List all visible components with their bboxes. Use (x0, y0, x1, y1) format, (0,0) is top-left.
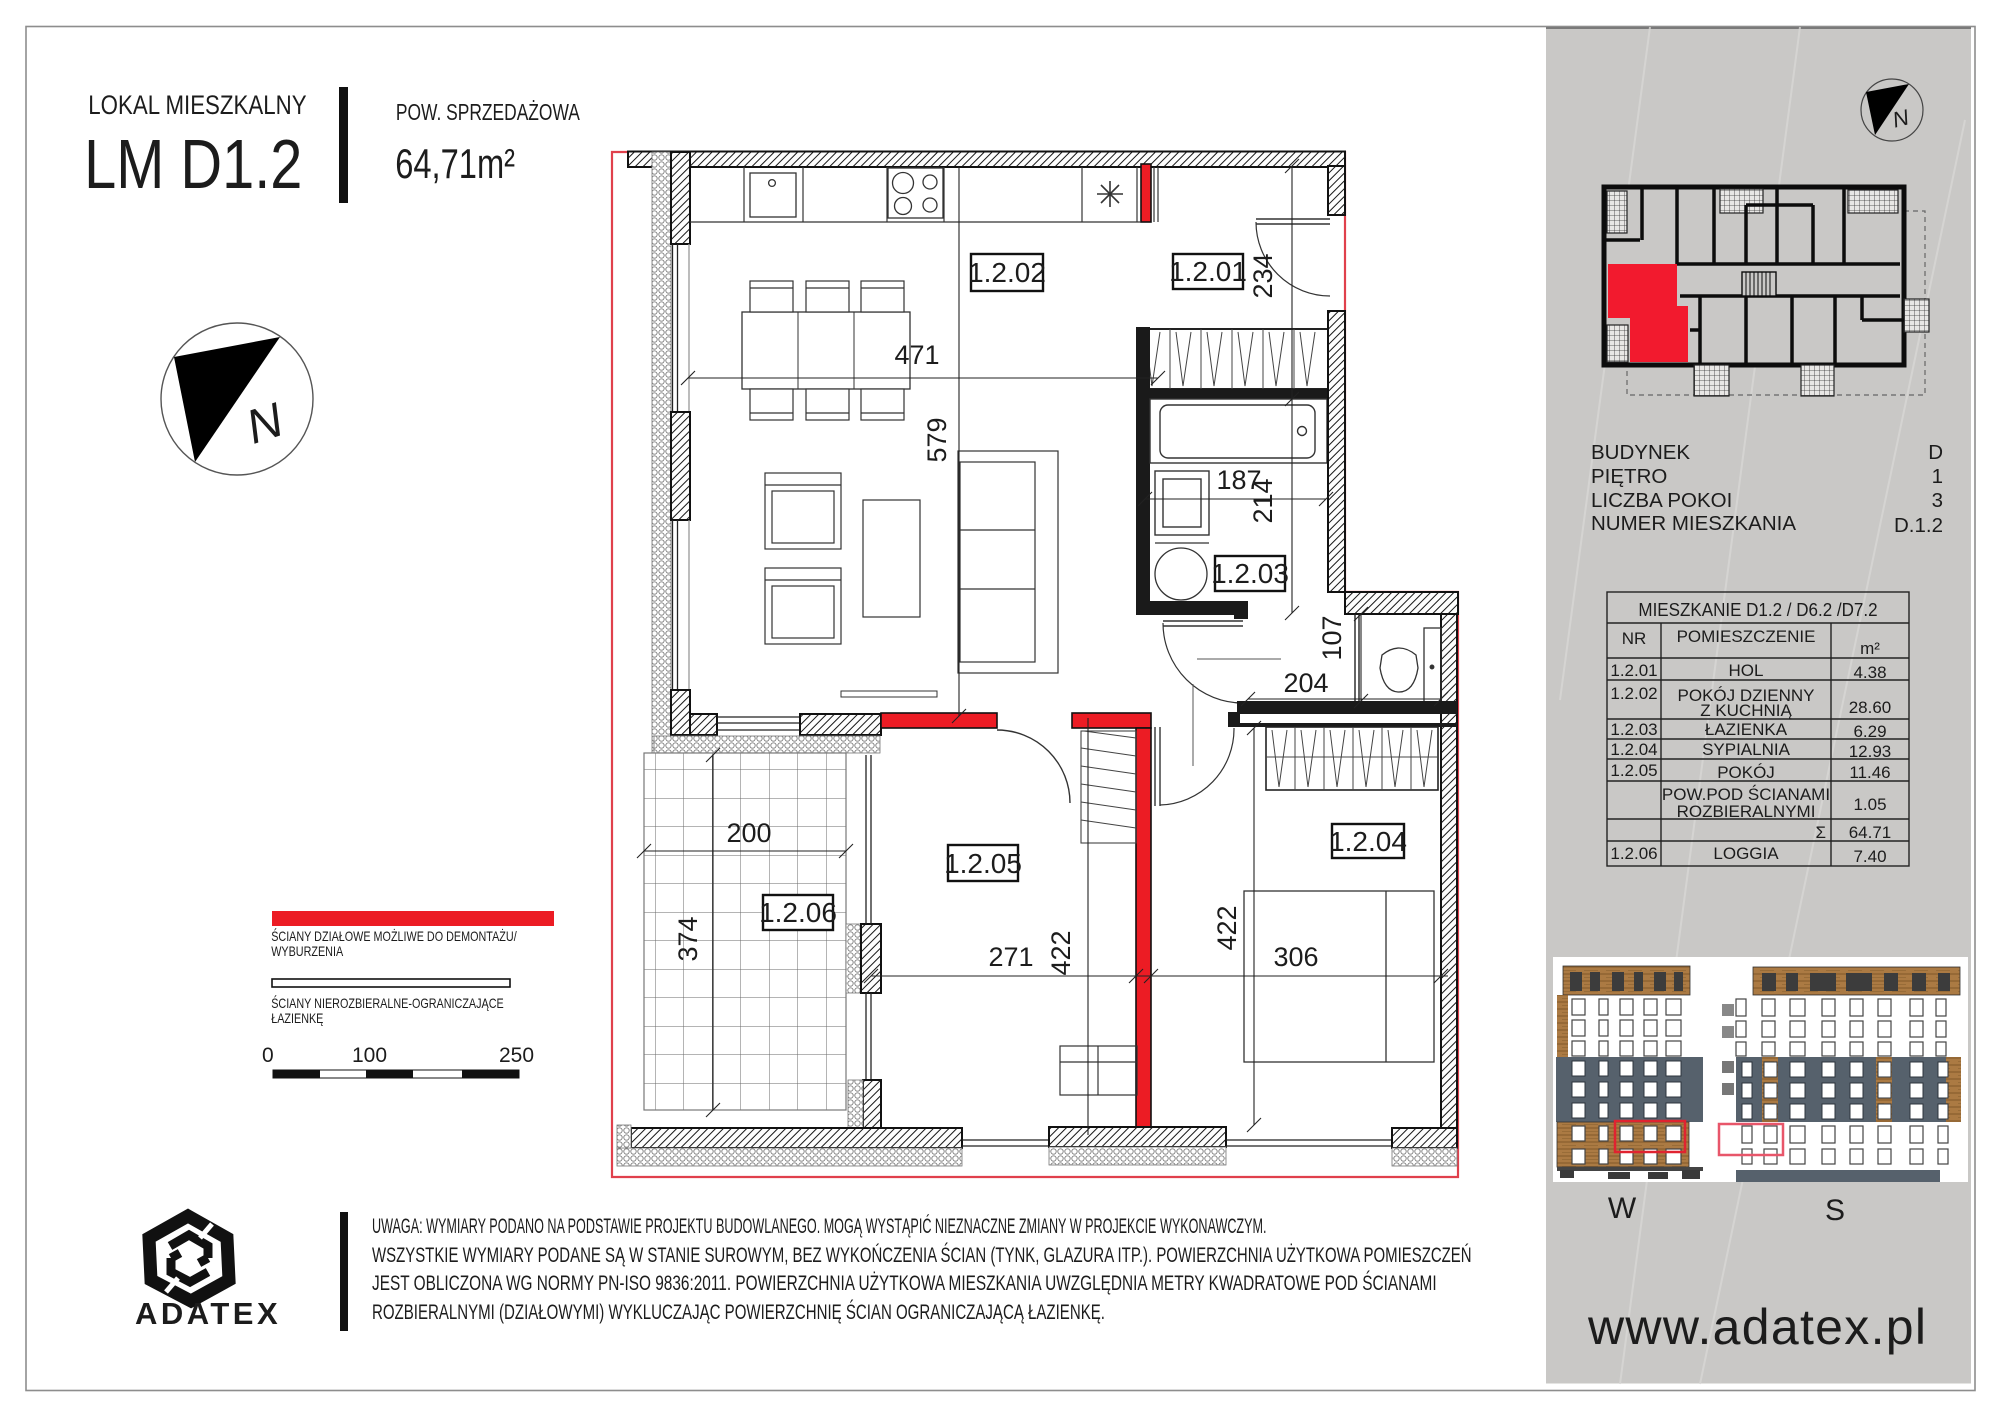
svg-text:W: W (1608, 1192, 1637, 1225)
svg-text:BUDYNEK: BUDYNEK (1591, 441, 1690, 464)
svg-text:MIESZKANIE D1.2 / D6.2 /D7.2: MIESZKANIE D1.2 / D6.2 /D7.2 (1638, 599, 1877, 620)
svg-text:374: 374 (673, 916, 703, 961)
svg-text:1.2.06: 1.2.06 (759, 897, 837, 928)
svg-text:WYBURZENIA: WYBURZENIA (271, 944, 344, 959)
svg-text:422: 422 (1046, 930, 1076, 975)
svg-text:LOGGIA: LOGGIA (1713, 844, 1779, 863)
svg-text:1.2.04: 1.2.04 (1329, 826, 1407, 857)
svg-text:D: D (1928, 441, 1943, 464)
svg-text:ROZBIERALNYMI (DZIAŁOWYMI) WYK: ROZBIERALNYMI (DZIAŁOWYMI) WYKLUCZAJĄC P… (372, 1299, 1105, 1323)
svg-text:D.1.2: D.1.2 (1894, 514, 1943, 537)
svg-text:1.05: 1.05 (1853, 795, 1886, 814)
svg-text:7.40: 7.40 (1853, 847, 1886, 866)
svg-text:ŚCIANY DZIAŁOWE MOŻLIWE DO DEM: ŚCIANY DZIAŁOWE MOŻLIWE DO DEMONTAŻU/ (271, 928, 517, 945)
svg-text:LM D1.2: LM D1.2 (84, 125, 302, 204)
svg-text:200: 200 (726, 818, 771, 848)
svg-text:64.71: 64.71 (1849, 823, 1892, 842)
svg-text:NUMER MIESZKANIA: NUMER MIESZKANIA (1591, 512, 1796, 535)
svg-text:LOKAL MIESZKALNY: LOKAL MIESZKALNY (88, 91, 306, 120)
svg-text:0: 0 (262, 1044, 274, 1067)
svg-text:1.2.02: 1.2.02 (968, 257, 1046, 288)
svg-text:1.2.06: 1.2.06 (1610, 844, 1657, 863)
svg-text:m²: m² (1860, 639, 1880, 658)
svg-text:ŚCIANY NIEROZBIERALNE-OGRANICZ: ŚCIANY NIEROZBIERALNE-OGRANICZAJĄCE (271, 995, 504, 1012)
svg-text:1.2.02: 1.2.02 (1610, 684, 1657, 703)
svg-text:64,71m²: 64,71m² (395, 140, 515, 187)
svg-text:12.93: 12.93 (1849, 742, 1892, 761)
svg-text:234: 234 (1248, 253, 1278, 298)
svg-text:UWAGA: WYMIARY PODANO NA PODST: UWAGA: WYMIARY PODANO NA PODSTAWIE PROJE… (372, 1212, 1266, 1238)
svg-text:ADATEX: ADATEX (135, 1296, 281, 1331)
svg-text:1: 1 (1932, 465, 1943, 488)
svg-text:HOL: HOL (1729, 661, 1764, 680)
svg-text:422: 422 (1212, 905, 1242, 950)
svg-text:306: 306 (1273, 942, 1318, 972)
svg-text:214: 214 (1248, 478, 1278, 523)
svg-text:SYPIALNIA: SYPIALNIA (1702, 740, 1791, 759)
svg-text:1.2.01: 1.2.01 (1610, 661, 1657, 680)
svg-text:Z KUCHNIĄ: Z KUCHNIĄ (1700, 701, 1792, 720)
svg-text:WSZYSTKIE WYMIARY PODANE SĄ W: WSZYSTKIE WYMIARY PODANE SĄ W STANIE SUR… (372, 1242, 1472, 1266)
svg-text:JEST OBLICZONA WG NORMY PN-ISO: JEST OBLICZONA WG NORMY PN-ISO 9836:2011… (372, 1270, 1437, 1294)
svg-text:NR: NR (1622, 629, 1647, 648)
svg-text:POW. SPRZEDAŻOWA: POW. SPRZEDAŻOWA (396, 100, 580, 126)
svg-text:1.2.01: 1.2.01 (1169, 256, 1247, 287)
svg-text:204: 204 (1283, 668, 1328, 698)
svg-text:1.2.04: 1.2.04 (1610, 740, 1657, 759)
svg-text:Σ: Σ (1815, 823, 1826, 842)
svg-text:POMIESZCZENIE: POMIESZCZENIE (1677, 627, 1816, 646)
svg-text:S: S (1825, 1194, 1845, 1227)
svg-text:271: 271 (988, 942, 1033, 972)
svg-text:1.2.03: 1.2.03 (1610, 720, 1657, 739)
svg-text:107: 107 (1317, 615, 1347, 660)
svg-text:1.2.03: 1.2.03 (1211, 558, 1289, 589)
svg-text:ROZBIERALNYMI: ROZBIERALNYMI (1677, 802, 1816, 821)
svg-text:11.46: 11.46 (1849, 763, 1890, 782)
svg-text:4.38: 4.38 (1853, 663, 1886, 682)
svg-text:LICZBA POKOI: LICZBA POKOI (1591, 489, 1732, 512)
svg-text:1.2.05: 1.2.05 (944, 848, 1022, 879)
svg-text:1.2.05: 1.2.05 (1610, 761, 1657, 780)
svg-text:100: 100 (352, 1044, 387, 1067)
svg-text:3: 3 (1932, 489, 1943, 512)
svg-text:250: 250 (499, 1044, 534, 1067)
svg-text:www.adatex.pl: www.adatex.pl (1587, 1299, 1927, 1355)
svg-text:POKÓJ: POKÓJ (1717, 763, 1775, 782)
svg-text:6.29: 6.29 (1853, 722, 1886, 741)
svg-text:PIĘTRO: PIĘTRO (1591, 465, 1667, 488)
svg-text:579: 579 (922, 417, 952, 462)
svg-text:ŁAZIENKĘ: ŁAZIENKĘ (271, 1011, 323, 1026)
svg-text:28.60: 28.60 (1849, 698, 1892, 717)
svg-text:ŁAZIENKA: ŁAZIENKA (1705, 720, 1788, 739)
svg-text:471: 471 (894, 340, 939, 370)
